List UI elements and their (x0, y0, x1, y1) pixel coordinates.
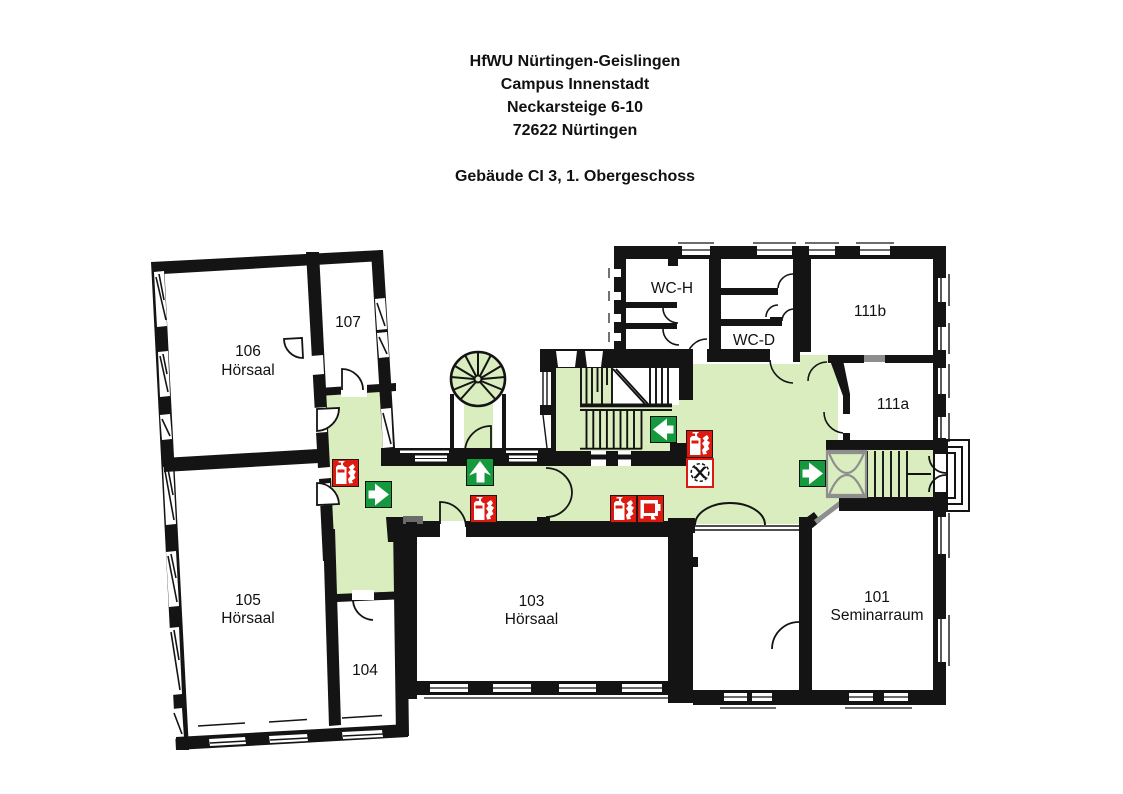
svg-text:72622 Nürtingen: 72622 Nürtingen (513, 122, 637, 139)
svg-text:Hörsaal: Hörsaal (221, 610, 274, 627)
svg-text:Neckarsteige 6-10: Neckarsteige 6-10 (507, 99, 643, 116)
svg-text:Campus Innenstadt: Campus Innenstadt (501, 76, 650, 93)
svg-text:Seminarraum: Seminarraum (830, 607, 923, 624)
svg-text:105: 105 (235, 592, 261, 609)
svg-text:111b: 111b (854, 303, 886, 320)
svg-text:111a: 111a (877, 396, 910, 413)
svg-text:107: 107 (335, 314, 361, 331)
svg-text:103: 103 (519, 593, 545, 610)
svg-text:Gebäude CI 3, 1. Obergeschoss: Gebäude CI 3, 1. Obergeschoss (455, 168, 695, 185)
svg-text:104: 104 (352, 662, 378, 679)
svg-text:WC-D: WC-D (733, 332, 775, 349)
svg-text:101: 101 (864, 589, 890, 606)
svg-text:Hörsaal: Hörsaal (505, 611, 558, 628)
svg-text:HfWU Nürtingen-Geislingen: HfWU Nürtingen-Geislingen (470, 53, 681, 70)
svg-text:WC-H: WC-H (651, 280, 693, 297)
svg-text:106: 106 (235, 343, 261, 360)
svg-text:Hörsaal: Hörsaal (221, 362, 274, 379)
